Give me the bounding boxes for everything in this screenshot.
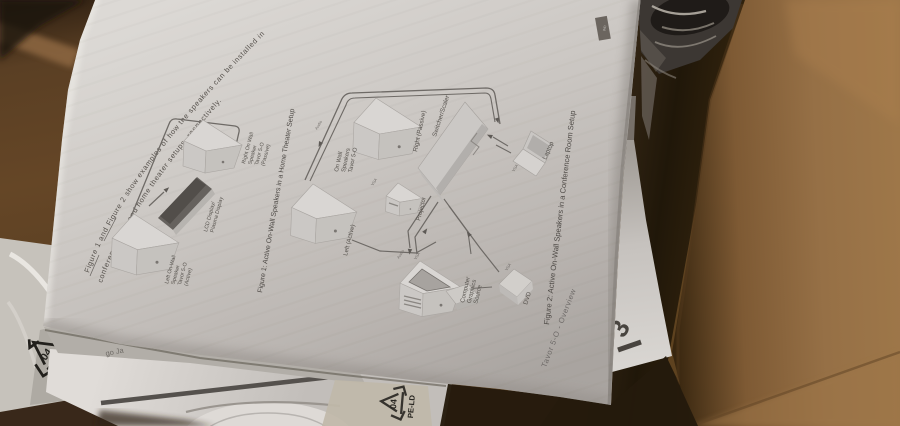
svg-text:04: 04 [388, 399, 399, 410]
